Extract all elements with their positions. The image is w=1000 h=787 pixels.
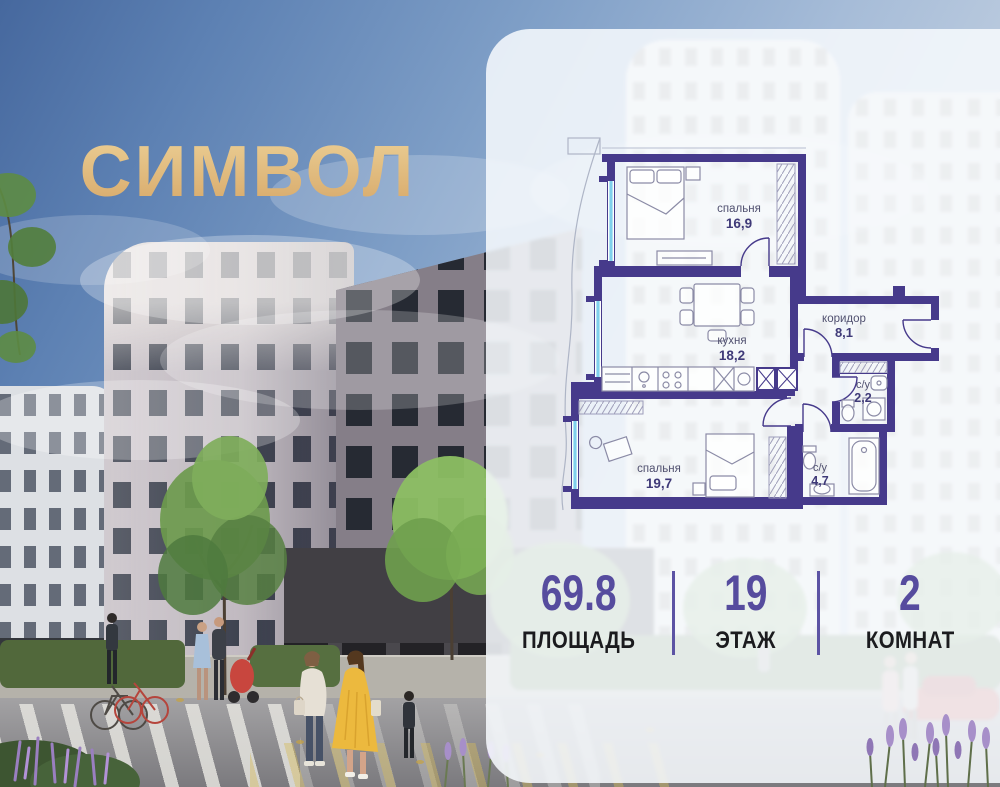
dining-table xyxy=(680,284,754,341)
svg-text:8,1: 8,1 xyxy=(835,325,853,340)
room-label-kitchen: кухня 18,2 xyxy=(717,335,746,363)
room-label-bathroom-large: с/у 4,7 xyxy=(811,462,828,488)
stat-area: 69.8 ПЛОЩАДЬ xyxy=(486,567,672,655)
svg-text:18,2: 18,2 xyxy=(719,348,745,363)
stat-area-value: 69.8 xyxy=(541,567,617,620)
bed-double xyxy=(627,167,700,239)
bathtub xyxy=(849,438,879,494)
room-label-corridor: коридор 8,1 xyxy=(822,313,866,340)
room-label-bedroom2: спальня 19,7 xyxy=(637,463,681,491)
dresser xyxy=(657,251,712,265)
listing-card: СИМВОЛ xyxy=(0,0,1000,787)
stat-rooms: 2 КОМНАТ xyxy=(820,567,1000,655)
kitchen-counter xyxy=(602,367,754,391)
svg-text:спальня: спальня xyxy=(637,463,681,475)
desk-chair xyxy=(588,427,632,465)
svg-text:коридор: коридор xyxy=(822,313,866,325)
stat-floor-value: 19 xyxy=(724,567,767,620)
brand-logo-text: СИМВОЛ xyxy=(80,132,417,212)
svg-text:кухня: кухня xyxy=(717,335,746,347)
stat-rooms-value: 2 xyxy=(899,567,921,620)
svg-text:спальня: спальня xyxy=(717,203,761,215)
svg-text:19,7: 19,7 xyxy=(646,476,672,491)
stat-floor-label: ЭТАЖ xyxy=(716,627,777,655)
svg-text:с/у: с/у xyxy=(813,462,828,474)
room-label-bedroom1: спальня 16,9 xyxy=(717,203,761,231)
floor-plan: спальня 16,9 кухня 18,2 коридор 8,1 с/у … xyxy=(554,134,946,558)
apartment-info-panel[interactable]: спальня 16,9 кухня 18,2 коридор 8,1 с/у … xyxy=(486,29,1000,783)
stat-rooms-label: КОМНАТ xyxy=(866,627,955,655)
bed-single xyxy=(693,434,754,497)
apartment-stats: 69.8 ПЛОЩАДЬ 19 ЭТАЖ 2 КОМНАТ xyxy=(486,567,1000,655)
pedestrian-couple xyxy=(193,617,226,700)
pedestrian-near-panel xyxy=(403,691,415,758)
bicycles xyxy=(91,683,168,729)
vent-shafts xyxy=(757,368,797,390)
stat-floor: 19 ЭТАЖ xyxy=(675,567,817,655)
brand-logo: СИМВОЛ xyxy=(58,116,438,220)
svg-text:2,2: 2,2 xyxy=(854,391,871,405)
svg-text:4,7: 4,7 xyxy=(811,474,828,488)
room-label-bathroom-small: с/у 2,2 xyxy=(854,379,871,405)
svg-text:с/у: с/у xyxy=(856,379,871,391)
svg-text:16,9: 16,9 xyxy=(726,216,752,231)
bush-bottom-left xyxy=(0,738,140,787)
stat-area-label: ПЛОЩАДЬ xyxy=(522,627,635,655)
